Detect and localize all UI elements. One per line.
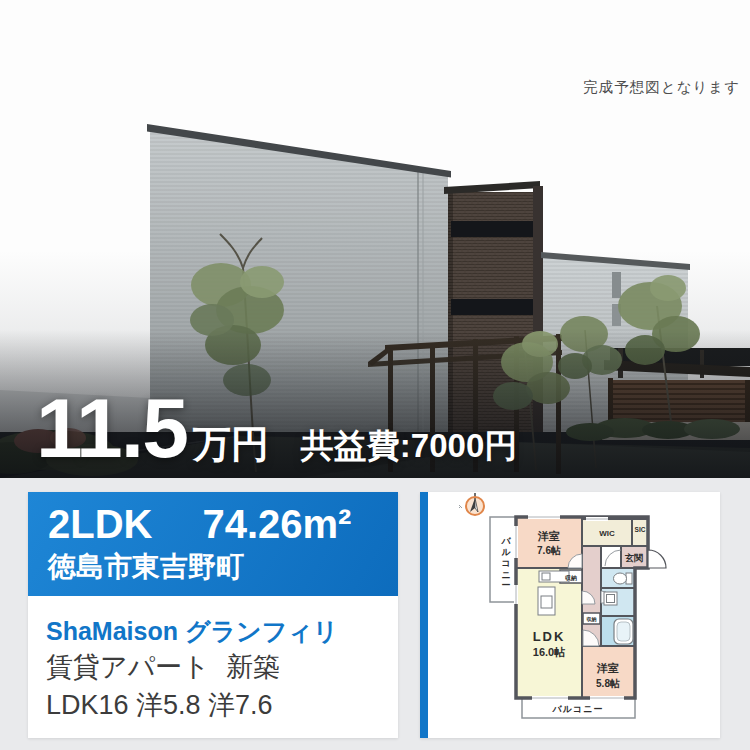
photo-section: 完成予想図となります 11.5 万円 共益費:7000円	[0, 0, 750, 478]
address: 徳島市東吉野町	[48, 550, 378, 584]
property-type: 賃貸アパート	[46, 652, 210, 682]
price-row: 11.5 万円 共益費:7000円	[36, 386, 517, 470]
rent-price: 11.5	[36, 386, 187, 470]
balcony-left-label: バルコニー	[494, 530, 512, 581]
property-card-header: 2LDK 74.26m² 徳島市東吉野町	[28, 492, 398, 596]
closet-hall-label: 収納	[587, 616, 597, 623]
rendering-disclaimer: 完成予想図となります	[583, 78, 740, 97]
layout-type: 2LDK	[48, 501, 152, 547]
sink-fixture	[604, 592, 617, 605]
ldk-size: 16.0帖	[533, 646, 565, 658]
listing-card: 完成予想図となります 11.5 万円 共益費:7000円 2LDK 74.26m…	[0, 0, 750, 750]
building-name: ShaMaison グランフィリ	[46, 615, 380, 648]
wic-label: WIC	[599, 529, 615, 538]
entrance-door-arc	[648, 550, 666, 568]
bathtub-fixture	[614, 619, 633, 644]
info-section: 2LDK 74.26m² 徳島市東吉野町 ShaMaison グランフィリ 賃貸…	[0, 478, 750, 750]
property-card: 2LDK 74.26m² 徳島市東吉野町 ShaMaison グランフィリ 賃貸…	[28, 492, 398, 738]
property-card-body: ShaMaison グランフィリ 賃貸アパート新築 LDK16 洋5.8 洋7.…	[28, 596, 398, 724]
ldk-label: LDK	[533, 629, 566, 644]
sic-label: SIC	[635, 526, 646, 533]
rooms-summary: LDK16 洋5.8 洋7.6	[46, 686, 380, 724]
rent-price-unit: 万円	[193, 419, 269, 470]
bedroom-large-label: 洋室	[537, 530, 560, 542]
build-status: 新築	[226, 652, 280, 682]
floorplan-card: 洋室 7.6帖 WIC SIC 玄関 収納 収納 LDK 16.0帖 洋室 5.…	[420, 492, 720, 738]
closet-ldk-label: 収納	[565, 574, 577, 582]
floor-area: 74.26m²	[202, 501, 351, 547]
floorplan-image: 洋室 7.6帖 WIC SIC 玄関 収納 収納 LDK 16.0帖 洋室 5.…	[428, 492, 720, 738]
balcony-bottom-label: バルコニー	[552, 704, 604, 714]
toilet-fixture	[614, 573, 633, 584]
entrance-label: 玄関	[624, 553, 643, 563]
bedroom-small-size: 5.8帖	[596, 678, 620, 689]
bedroom-small-label: 洋室	[596, 662, 619, 674]
maintenance-fee: 共益費:7000円	[301, 424, 517, 469]
compass-icon	[459, 493, 484, 515]
bedroom-large-size: 7.6帖	[537, 545, 561, 556]
